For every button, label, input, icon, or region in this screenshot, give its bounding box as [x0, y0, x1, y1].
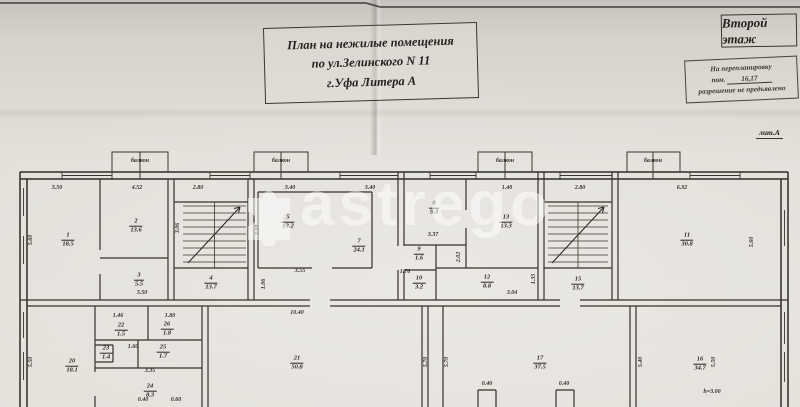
- room-label-12: 128.8: [481, 274, 494, 291]
- room-label-22: 221.5: [115, 322, 128, 339]
- dimension-label: 3.08: [255, 225, 261, 236]
- dimension-label: 2.02: [456, 252, 462, 263]
- dimension-label: 1.06: [261, 279, 267, 290]
- dimension-label: 3.40: [285, 185, 296, 191]
- dimension-label: 2.80: [575, 185, 586, 191]
- dimension-label: 3.06: [175, 223, 181, 234]
- litera-label: лит.А: [756, 128, 783, 139]
- dimension-label: 5.50: [711, 357, 717, 368]
- room-label-26: 261.8: [161, 321, 174, 338]
- dimension-label: 1.80: [165, 313, 176, 319]
- dimension-label: 5.50: [28, 357, 34, 368]
- room-label-3: 35.5: [134, 272, 144, 289]
- balcony-label: балкон: [272, 158, 290, 164]
- dimension-label: 5.70: [423, 357, 429, 368]
- room-label-5: 513.2: [281, 214, 294, 231]
- balcony-label: балкон: [644, 158, 662, 164]
- room-label-9: 91.6: [414, 246, 424, 263]
- scanned-floor-plan-document: 118.5213.635.5413.7513.2724.189.391.6103…: [0, 0, 800, 407]
- dimension-label: 3.40: [365, 185, 376, 191]
- dimension-label: 3.50: [137, 290, 148, 296]
- room-label-4: 413.7: [204, 275, 217, 292]
- dimension-label: 3.04: [507, 290, 518, 296]
- dimension-label: 0.40: [482, 381, 493, 387]
- room-label-17: 1737.5: [533, 355, 546, 372]
- dimension-label: 3.50: [52, 185, 63, 191]
- dimension-label: 0.40: [138, 397, 149, 403]
- room-label-13: 1313.3: [499, 214, 512, 231]
- balcony-label: балкон: [131, 158, 149, 164]
- dimension-label: 0.40: [559, 381, 570, 387]
- room-label-1: 118.5: [61, 232, 74, 249]
- room-label-16: 1634.7: [693, 356, 706, 373]
- dimension-label: 1.76: [400, 269, 411, 275]
- dimension-label: 6.92: [677, 185, 688, 191]
- dimension-label: 3.55: [295, 268, 306, 274]
- title-line-1: План на нежилые помещения: [264, 33, 476, 55]
- dimension-label: 10.40: [290, 310, 304, 316]
- room-label-10: 103.2: [413, 275, 426, 292]
- room-label-7: 724.1: [352, 238, 365, 255]
- floor-label: Второй этаж: [722, 14, 797, 47]
- floor-label-box: Второй этаж: [721, 13, 798, 47]
- room-label-2: 213.6: [129, 218, 142, 235]
- dimension-label: 4.52: [132, 185, 143, 191]
- title-line-3: г.Уфа Литера А: [265, 72, 477, 94]
- room-label-23: 231.4: [100, 345, 113, 362]
- dimension-label: 5.40: [638, 357, 644, 368]
- dimension-label: 1.60: [128, 344, 139, 350]
- dimension-label: 2.80: [193, 185, 204, 191]
- dimension-label: 1.46: [113, 313, 124, 319]
- title-block: План на нежилые помещения по ул.Зелинско…: [263, 22, 479, 104]
- balcony-label: балкон: [496, 158, 514, 164]
- permit-stamp: На перепланировку пом. 16,17 разрешение …: [684, 56, 799, 104]
- room-label-8: 89.3: [429, 200, 439, 217]
- dimension-label: 1.40: [502, 185, 513, 191]
- room-label-11: 1130.8: [680, 232, 693, 249]
- dimension-label: 5.60: [749, 237, 755, 248]
- room-label-15: 1513.7: [571, 276, 584, 293]
- dimension-label: 1.35: [531, 274, 537, 285]
- dimension-label: 5.60: [28, 235, 34, 246]
- room-label-25: 251.7: [157, 344, 170, 361]
- title-line-2: по ул.Зелинского N 11: [265, 52, 477, 74]
- dimension-label: h=3.00: [703, 389, 720, 395]
- stamp-line-3: разрешение не предъявлено: [698, 83, 786, 98]
- dimension-label: 5.70: [444, 357, 450, 368]
- room-label-20: 2018.1: [65, 358, 78, 375]
- dimension-label: 3.37: [428, 232, 439, 238]
- room-label-21: 2150.8: [290, 355, 303, 372]
- dimension-label: 0.60: [171, 397, 182, 403]
- dimension-label: 3.35: [145, 368, 156, 374]
